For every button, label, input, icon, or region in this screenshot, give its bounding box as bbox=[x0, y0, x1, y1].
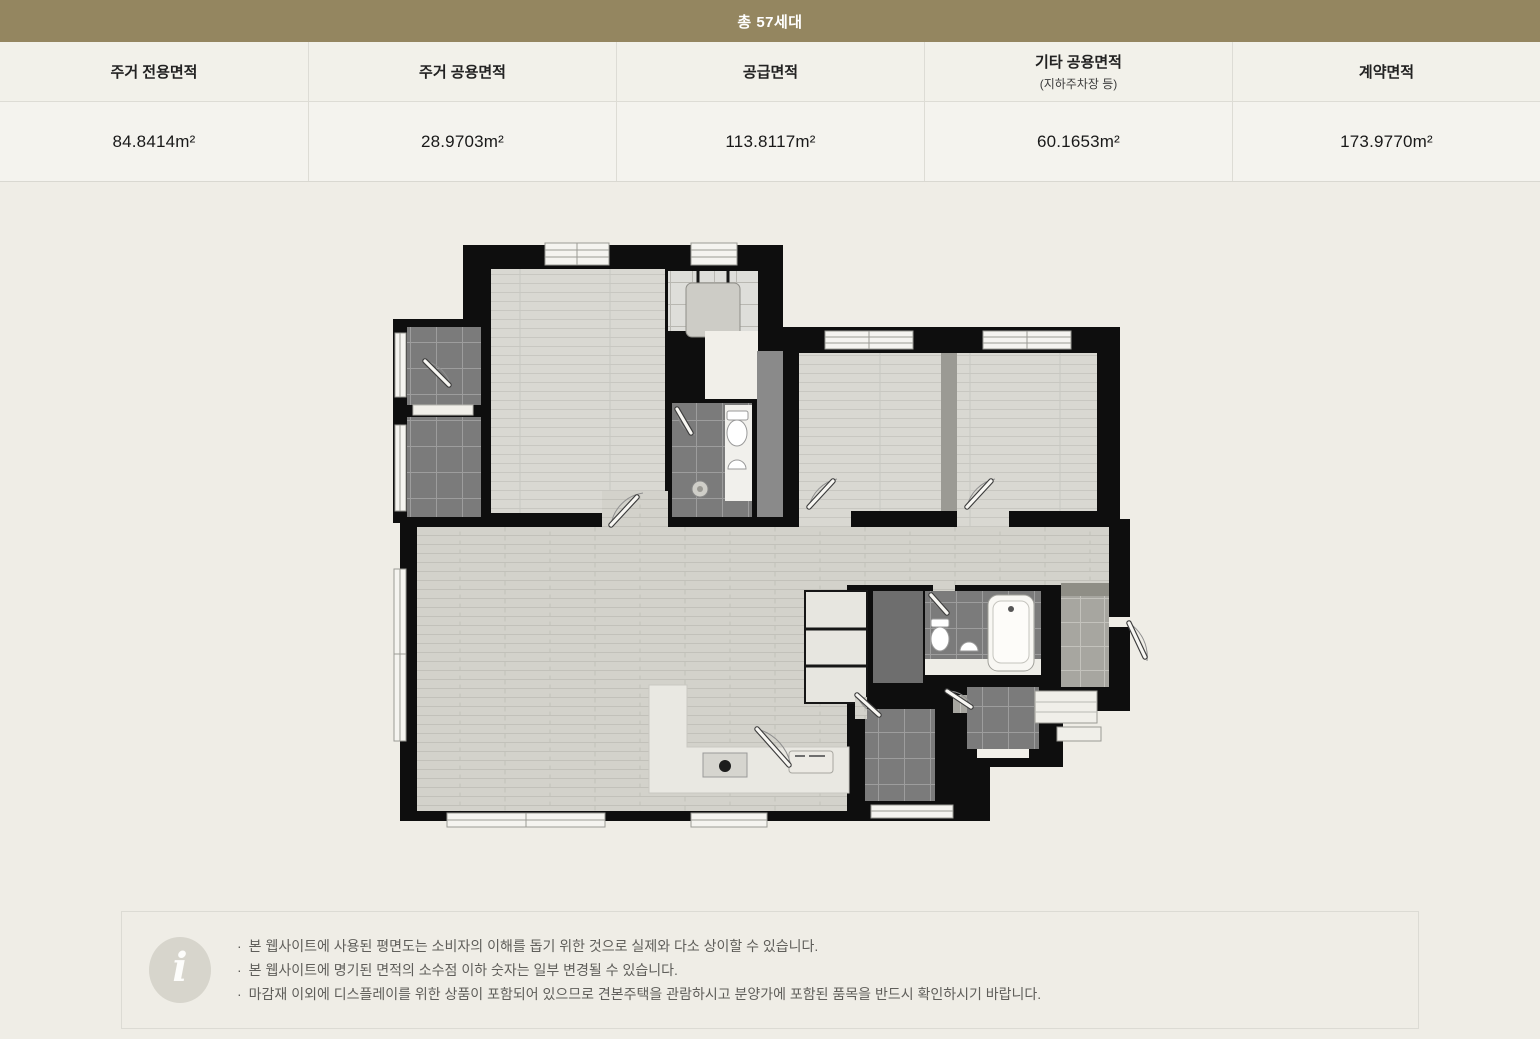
toilet-tank-2 bbox=[931, 619, 949, 627]
area-value-contract: 173.9770m² bbox=[1232, 102, 1540, 181]
notice-text: 마감재 이외에 디스플레이를 위한 상품이 포함되어 있으므로 견본주택을 관람… bbox=[249, 986, 1042, 1002]
col-label: 계약면적 bbox=[1359, 61, 1414, 82]
col-label: 주거 공용면적 bbox=[419, 61, 506, 82]
wardrobe-unit bbox=[686, 283, 740, 337]
area-header-supply: 공급면적 bbox=[616, 42, 924, 102]
notice-text: 본 웹사이트에 사용된 평면도는 소비자의 이해를 돕기 위한 것으로 실제와 … bbox=[249, 938, 819, 954]
area-value-supply: 113.8117m² bbox=[616, 102, 924, 181]
balcony-upper-floor bbox=[407, 327, 481, 405]
area-value-other-common: 60.1653m² bbox=[924, 102, 1232, 181]
bedroom-divider-wall bbox=[941, 353, 957, 511]
area-value-exclusive: 84.8414m² bbox=[0, 102, 308, 181]
notice-list: ·본 웹사이트에 사용된 평면도는 소비자의 이해를 돕기 위한 것으로 실제와… bbox=[237, 934, 1041, 1006]
toilet-2 bbox=[931, 627, 949, 651]
dress-room-floor bbox=[967, 687, 1039, 749]
built-in-wardrobes bbox=[805, 591, 867, 703]
col-label: 기타 공용면적 bbox=[1035, 51, 1122, 72]
entry-floor bbox=[1061, 583, 1109, 687]
notice-item: ·마감재 이외에 디스플레이를 위한 상품이 포함되어 있으므로 견본주택을 관… bbox=[237, 982, 1041, 1006]
area-value-common: 28.9703m² bbox=[308, 102, 616, 181]
closet-strip bbox=[757, 351, 783, 517]
area-table: 주거 전용면적 주거 공용면적 공급면적 기타 공용면적 (지하주차장 등) 계… bbox=[0, 42, 1540, 182]
entry-mat bbox=[1061, 583, 1109, 596]
area-header-common: 주거 공용면적 bbox=[308, 42, 616, 102]
area-header-other-common: 기타 공용면적 (지하주차장 등) bbox=[924, 42, 1232, 102]
balcony-lower-floor bbox=[407, 417, 481, 517]
total-units-label: 총 57세대 bbox=[737, 11, 802, 32]
area-header-exclusive: 주거 전용면적 bbox=[0, 42, 308, 102]
utility-room-floor bbox=[865, 709, 935, 801]
notice-item: ·본 웹사이트에 명기된 면적의 소수점 이하 숫자는 일부 변경될 수 있습니… bbox=[237, 958, 1041, 982]
info-icon: i bbox=[149, 937, 211, 1003]
shoe-cabinet bbox=[1035, 691, 1097, 723]
bedroom-1-floor bbox=[491, 269, 665, 513]
bullet: · bbox=[237, 938, 242, 954]
col-label: 주거 전용면적 bbox=[111, 61, 198, 82]
toilet-tank bbox=[727, 411, 748, 420]
kitchen-sink bbox=[789, 751, 833, 773]
corridor-floor bbox=[762, 585, 804, 747]
bullet: · bbox=[237, 962, 242, 978]
toilet-1 bbox=[727, 420, 747, 446]
info-icon-glyph: i bbox=[172, 948, 187, 988]
pantry-closet bbox=[873, 591, 923, 683]
col-label: 공급면적 bbox=[743, 61, 798, 82]
notice-text: 본 웹사이트에 명기된 면적의 소수점 이하 숫자는 일부 변경될 수 있습니다… bbox=[249, 962, 678, 978]
hallway-floor bbox=[847, 527, 1109, 585]
floor-plan bbox=[385, 239, 1155, 829]
notice-item: ·본 웹사이트에 사용된 평면도는 소비자의 이해를 돕기 위한 것으로 실제와… bbox=[237, 934, 1041, 958]
area-header-contract: 계약면적 bbox=[1232, 42, 1540, 102]
total-units-bar: 총 57세대 bbox=[0, 0, 1540, 42]
notice-box: i ·본 웹사이트에 사용된 평면도는 소비자의 이해를 돕기 위한 것으로 실… bbox=[121, 911, 1419, 1029]
col-sublabel: (지하주차장 등) bbox=[1040, 75, 1118, 92]
bullet: · bbox=[237, 986, 242, 1002]
floor-plan-drawing bbox=[385, 239, 1155, 829]
